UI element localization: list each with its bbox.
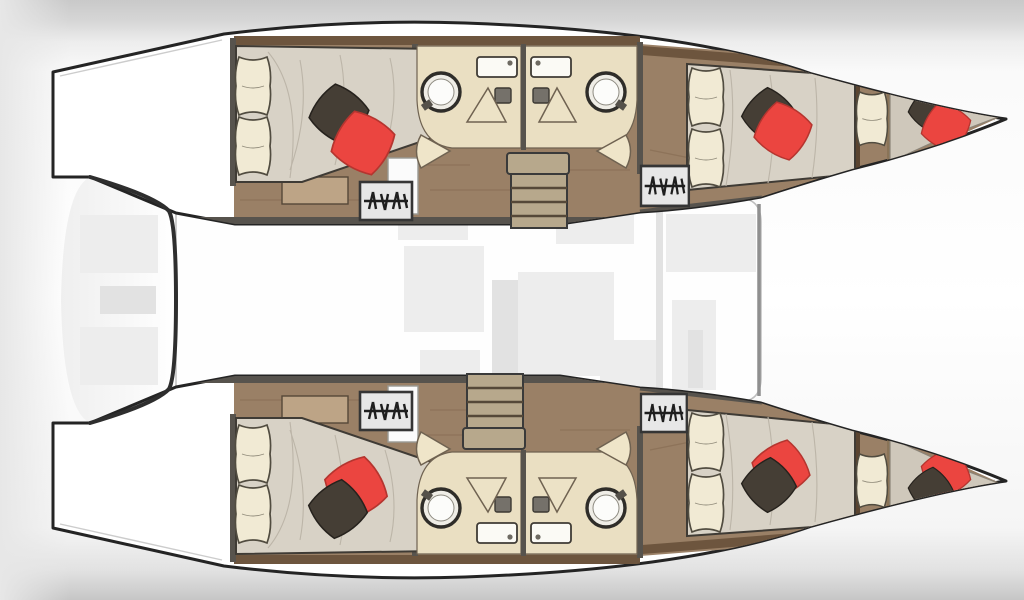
wc [495, 497, 511, 512]
companionway-steps-icon [641, 394, 687, 432]
vanity-sink [477, 57, 517, 77]
bathroom-partition [521, 44, 526, 150]
companionway-steps-icon [641, 166, 689, 206]
cockpit-bench [80, 215, 158, 273]
bed-pillow [235, 117, 270, 175]
wc [533, 497, 549, 512]
cockpit-bench [80, 327, 158, 385]
bed-pillow [856, 92, 887, 145]
vanity-sink [531, 523, 571, 543]
cabinet-shelf [688, 330, 703, 388]
saloon-divider [656, 200, 663, 400]
saloon-sofa [404, 246, 484, 332]
catamaran-floor-plan [0, 0, 1024, 600]
cockpit-table [100, 286, 156, 314]
companionway-steps-icon [360, 392, 412, 430]
forward-cabin [687, 64, 855, 190]
vanity-sink [531, 57, 571, 77]
wc [495, 88, 511, 103]
forward-cabin [687, 410, 855, 536]
faucet [507, 534, 512, 539]
faucet [507, 60, 512, 65]
head-bulkhead [637, 42, 643, 174]
faucet [535, 534, 540, 539]
bed-pillow [688, 413, 723, 471]
saloon-deck [176, 198, 761, 402]
bed-pillow [688, 474, 723, 532]
faucet [535, 60, 540, 65]
vanity-sink [477, 523, 517, 543]
sideboard [666, 214, 756, 272]
bed-pillow [235, 425, 270, 483]
bed-pillow [235, 485, 270, 543]
outboard-wall [234, 555, 640, 564]
stairs-starboard [463, 374, 525, 449]
bed-pillow [688, 129, 723, 187]
bathroom-partition [521, 450, 526, 556]
wc [533, 88, 549, 103]
companionway-steps-icon [360, 182, 412, 220]
saloon-seat [518, 272, 614, 376]
bed-pillow [235, 57, 270, 115]
head-bulkhead [637, 426, 643, 558]
stairs-port [507, 153, 569, 228]
cockpit [61, 177, 176, 423]
bed-pillow [856, 454, 887, 507]
floor-plan-canvas [0, 0, 1024, 600]
bed-pillow [688, 68, 723, 126]
outboard-wall [234, 36, 640, 45]
